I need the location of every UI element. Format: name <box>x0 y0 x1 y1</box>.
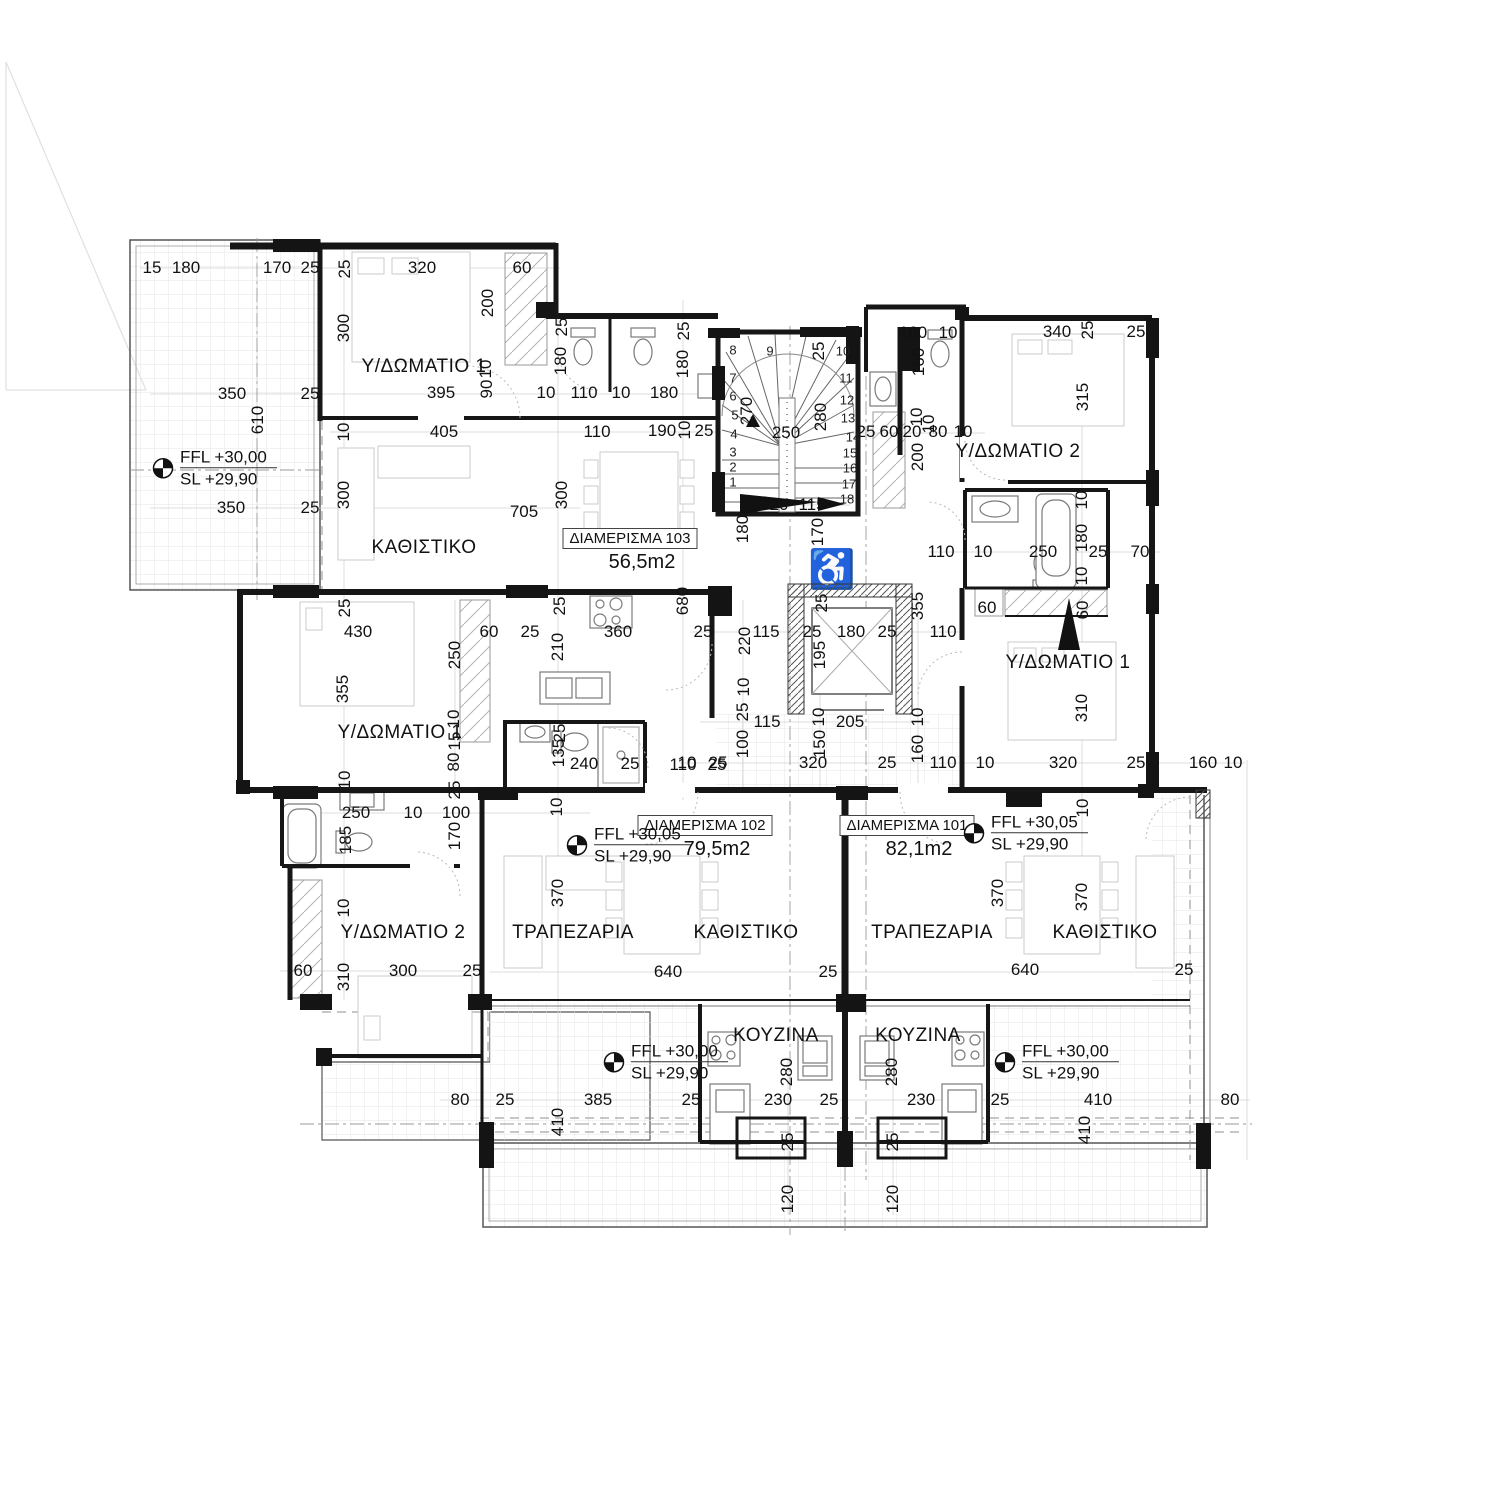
dimension-label: 355 <box>908 592 928 620</box>
dimension-label: 60 <box>880 422 899 442</box>
dimension-label: 300 <box>334 314 354 342</box>
dimension-label: 70 <box>1131 542 1150 562</box>
level-marker-icon <box>603 1051 625 1073</box>
dimension-label: 170 <box>808 518 828 546</box>
stair-step-number: 7 <box>729 371 736 386</box>
ffl-value: FFL +30,00 <box>180 446 277 468</box>
dimension-label: 25 <box>809 342 829 361</box>
room-label: ΚΑΘΙΣΤΙΚΟ <box>1052 922 1157 944</box>
dimension-label: 115 <box>753 712 780 732</box>
dimension-label: 160 <box>908 735 928 763</box>
dimension-label: 10 <box>334 423 354 442</box>
dimension-label: 10 <box>954 422 973 442</box>
dimension-label: 160 <box>899 323 927 343</box>
stair-step-number: 5 <box>731 408 738 423</box>
sl-value: SL +29,90 <box>631 1063 728 1084</box>
dimension-label: 160 <box>1189 753 1217 773</box>
sl-value: SL +29,90 <box>1022 1063 1119 1084</box>
dimension-label: 25 <box>674 322 694 341</box>
stair-step-number: 12 <box>840 393 854 408</box>
dimension-label: 115 <box>798 495 825 515</box>
ffl-value: FFL +30,00 <box>631 1040 728 1062</box>
dimension-label: 410 <box>1084 1090 1112 1110</box>
dimension-label: 10 <box>335 771 355 790</box>
dimension-label: 10 <box>974 542 993 562</box>
dimension-label: 25 <box>733 703 753 722</box>
sl-value: SL +29,90 <box>594 846 691 867</box>
sl-value: SL +29,90 <box>180 469 277 490</box>
dimension-label: 25 <box>1127 322 1146 342</box>
dimension-label: 300 <box>334 481 354 509</box>
dimension-label: 405 <box>430 422 458 442</box>
stair-step-number: 1 <box>729 475 736 490</box>
dimension-label: 10 <box>1224 753 1243 773</box>
dimension-label: 25 <box>463 961 482 981</box>
room-label: ΚΟΥΖΙΝΑ <box>875 1025 961 1047</box>
dimension-label: 10 <box>1072 491 1092 510</box>
room-label: Υ/ΔΩΜΑΤΙΟ 2 <box>956 441 1081 463</box>
dimension-label: 115 <box>752 622 779 642</box>
dimension-label: 220 <box>735 627 755 655</box>
dimension-label: 25 <box>682 1090 701 1110</box>
dimension-label: 320 <box>799 753 827 773</box>
dimension-label: 25 <box>521 622 540 642</box>
dimension-label: 60 <box>978 598 997 618</box>
dimension-label: 90 <box>477 380 497 399</box>
dimension-label: 120 <box>883 1185 903 1213</box>
dimension-label: 10 <box>675 421 695 440</box>
dimension-label: 310 <box>1072 694 1092 722</box>
dimension-label: 25 <box>621 754 640 774</box>
dimension-label: 190 <box>648 421 676 441</box>
dimension-label: 60 <box>480 622 499 642</box>
dimension-label: 10 <box>334 899 354 918</box>
dimension-label: 25 <box>820 1090 839 1110</box>
dimension-label: 10 <box>908 708 928 727</box>
dimension-label: 180 <box>673 350 693 378</box>
stair-step-number: 14 <box>846 430 860 445</box>
dimension-label: 10 <box>939 323 958 343</box>
level-marker-icon <box>994 1051 1016 1073</box>
dimension-label: 20 <box>770 495 789 515</box>
dimension-label: 110 <box>929 622 956 642</box>
dimension-label: 135 <box>549 739 569 767</box>
dimension-label: 320 <box>408 258 436 278</box>
dimension-label: 250 <box>342 803 370 823</box>
dimension-label: 10 <box>734 678 754 697</box>
level-marker: FFL +30,00SL +29,90 <box>603 1040 728 1084</box>
stair-step-number: 3 <box>729 445 736 460</box>
dimension-label: 25 <box>496 1090 515 1110</box>
dimension-label: 180 <box>551 347 571 375</box>
dimension-label: 25 <box>550 597 570 616</box>
dimension-label: 185 <box>336 826 356 854</box>
dimension-label: 25 <box>552 318 572 337</box>
dimension-label: 280 <box>882 1058 902 1086</box>
apartment-area-label: 56,5m2 <box>586 551 697 574</box>
dimension-label: 705 <box>510 502 538 522</box>
dimension-label: 25 <box>878 622 897 642</box>
dimension-label: 300 <box>389 961 417 981</box>
stair-step-number: 2 <box>729 460 736 475</box>
dimension-label: 315 <box>1073 383 1093 411</box>
dimension-label: 10 <box>1072 567 1092 586</box>
dimension-label: 230 <box>907 1090 935 1110</box>
dimension-label: 110 <box>927 542 954 562</box>
stair-step-number: 15 <box>843 446 857 461</box>
dimension-label: 25 <box>694 622 713 642</box>
dimension-label: 180 <box>650 383 678 403</box>
level-marker: FFL +30,05SL +29,90 <box>963 811 1088 855</box>
stair-step-number: 10 <box>836 344 850 359</box>
dimension-label: 10 <box>547 798 567 817</box>
dimension-label: 310 <box>334 963 354 991</box>
dimension-label: 180 <box>733 515 753 543</box>
dimension-label: 355 <box>333 675 353 703</box>
dimension-label: 25 <box>1175 960 1194 980</box>
dimension-label: 340 <box>1043 322 1071 342</box>
dimension-label: 25 <box>708 755 727 775</box>
dimension-label: 410 <box>1075 1116 1095 1144</box>
dimension-label: 410 <box>548 1108 568 1136</box>
ffl-value: FFL +30,05 <box>991 811 1088 833</box>
stair-step-number: 18 <box>840 492 854 507</box>
dimension-label: 25 <box>991 1090 1010 1110</box>
dimension-label: 280 <box>777 1058 797 1086</box>
dimension-label: 110 <box>570 383 597 403</box>
dimension-label: 60 <box>294 961 313 981</box>
dimension-label: 200 <box>478 289 498 317</box>
dimension-label: 160 <box>909 348 929 376</box>
dimension-label: 350 <box>217 498 245 518</box>
dimension-label: 25 <box>301 384 320 404</box>
dimension-label: 80 <box>444 753 464 772</box>
room-label: Υ/ΔΩΜΑΤΙΟ 1 <box>338 722 463 744</box>
room-label: Υ/ΔΩΜΑΤΙΟ 1 <box>362 356 487 378</box>
dimension-label: 10 <box>809 708 829 727</box>
dimension-label: 25 <box>335 599 355 618</box>
dimension-label: 100 <box>733 730 753 758</box>
apartment-number-label: ΔΙΑΜΕΡΙΣΜΑ 101 <box>839 815 974 836</box>
annotation-layer: 1518017025253206030020010903951011010180… <box>0 0 1500 1500</box>
dimension-label: 60 <box>513 258 532 278</box>
dimension-label: 300 <box>552 481 572 509</box>
dimension-label: 280 <box>811 403 831 431</box>
dimension-label: 25 <box>883 1133 903 1152</box>
level-marker-text: FFL +30,00SL +29,90 <box>1022 1040 1119 1084</box>
stair-step-number: 9 <box>766 344 773 359</box>
room-label: ΚΟΥΖΙΝΑ <box>733 1025 819 1047</box>
dimension-label: 610 <box>248 406 268 434</box>
dimension-label: 25 <box>878 753 897 773</box>
dimension-label: 240 <box>570 754 598 774</box>
dimension-label: 80 <box>929 422 948 442</box>
dimension-label: 15 <box>143 258 162 278</box>
dimension-label: 270 <box>737 397 757 425</box>
level-marker: FFL +30,00SL +29,90 <box>994 1040 1119 1084</box>
dimension-label: 120 <box>778 1185 798 1213</box>
level-marker-text: FFL +30,05SL +29,90 <box>594 823 691 867</box>
dimension-label: 195 <box>810 641 830 669</box>
dimension-label: 25 <box>301 258 320 278</box>
dimension-label: 25 <box>695 421 714 441</box>
dimension-label: 25 <box>819 962 838 982</box>
stair-step-number: 16 <box>843 461 857 476</box>
dimension-label: 250 <box>772 423 800 443</box>
dimension-label: 25 <box>803 622 822 642</box>
room-label: ΚΑΘΙΣΤΙΚΟ <box>371 537 476 559</box>
apartment-tag: ΔΙΑΜΕΡΙΣΜΑ 10356,5m2 <box>562 528 697 574</box>
dimension-label: 250 <box>445 641 465 669</box>
dimension-label: 205 <box>836 712 864 732</box>
dimension-label: 10 <box>612 383 631 403</box>
sl-value: SL +29,90 <box>991 834 1088 855</box>
room-label: ΤΡΑΠΕΖΑΡΙΑ <box>871 922 993 944</box>
dimension-label: 395 <box>427 383 455 403</box>
room-label: ΚΑΘΙΣΤΙΚΟ <box>693 922 798 944</box>
room-label: Υ/ΔΩΜΑΤΙΟ 2 <box>341 922 466 944</box>
dimension-label: 100 <box>442 803 470 823</box>
apartment-area-label: 82,1m2 <box>863 838 974 861</box>
dimension-label: 200 <box>908 443 928 471</box>
dimension-label: 25 <box>778 1133 798 1152</box>
stair-step-number: 4 <box>730 427 737 442</box>
ffl-value: FFL +30,00 <box>1022 1040 1119 1062</box>
dimension-label: 80 <box>1221 1090 1240 1110</box>
level-marker-text: FFL +30,00SL +29,90 <box>631 1040 728 1084</box>
dimension-label: 320 <box>1049 753 1077 773</box>
dimension-label: 640 <box>1011 960 1039 980</box>
dimension-label: 170 <box>263 258 291 278</box>
dimension-label: 430 <box>344 622 372 642</box>
dimension-label: 25 <box>1127 753 1146 773</box>
ffl-value: FFL +30,05 <box>594 823 691 845</box>
dimension-label: 25 <box>812 594 832 613</box>
dimension-label: 10 <box>404 803 423 823</box>
dimension-label: 80 <box>451 1090 470 1110</box>
dimension-label: 370 <box>548 879 568 907</box>
dimension-label: 680 <box>673 587 693 615</box>
level-marker-text: FFL +30,00SL +29,90 <box>180 446 277 490</box>
dimension-label: 385 <box>584 1090 612 1110</box>
dimension-label: 230 <box>764 1090 792 1110</box>
dimension-label: 25 <box>1078 321 1098 340</box>
room-label: ΤΡΑΠΕΖΑΡΙΑ <box>512 922 634 944</box>
dimension-label: 110 <box>583 422 610 442</box>
dimension-label: 10 <box>976 753 995 773</box>
room-label: Υ/ΔΩΜΑΤΙΟ 1 <box>1006 652 1131 674</box>
dimension-label: 180 <box>837 622 865 642</box>
dimension-label: 110 <box>929 753 956 773</box>
dimension-label: 170 <box>445 822 465 850</box>
dimension-label: 10 <box>537 383 556 403</box>
level-marker: FFL +30,05SL +29,90 <box>566 823 691 867</box>
dimension-label: 210 <box>548 633 568 661</box>
dimension-label: 350 <box>218 384 246 404</box>
dimension-label: 250 <box>1029 542 1057 562</box>
dimension-label: 370 <box>988 879 1008 907</box>
stair-step-number: 17 <box>842 477 856 492</box>
level-marker-icon <box>963 822 985 844</box>
dimension-label: 640 <box>654 962 682 982</box>
dimension-label: 110 <box>669 755 696 775</box>
dimension-label: 360 <box>604 622 632 642</box>
dimension-label: 25 <box>335 260 355 279</box>
level-marker: FFL +30,00SL +29,90 <box>152 446 277 490</box>
stair-step-number: 6 <box>729 389 736 404</box>
dimension-label: 25 <box>301 498 320 518</box>
dimension-label: 180 <box>172 258 200 278</box>
dimension-label: 115 <box>740 493 767 513</box>
stair-step-number: 11 <box>839 371 853 386</box>
dimension-label: 370 <box>1072 883 1092 911</box>
stair-step-number: 8 <box>729 343 736 358</box>
dimension-label: 60 <box>1073 601 1093 620</box>
floor-plan-page: ♿ <box>0 0 1500 1500</box>
dimension-label: 25 <box>1089 542 1108 562</box>
level-marker-icon <box>152 457 174 479</box>
level-marker-icon <box>566 834 588 856</box>
dimension-label: 25 <box>445 781 465 800</box>
apartment-number-label: ΔΙΑΜΕΡΙΣΜΑ 103 <box>562 528 697 549</box>
level-marker-text: FFL +30,05SL +29,90 <box>991 811 1088 855</box>
apartment-tag: ΔΙΑΜΕΡΙΣΜΑ 10182,1m2 <box>839 815 974 861</box>
stair-step-number: 13 <box>841 411 855 426</box>
